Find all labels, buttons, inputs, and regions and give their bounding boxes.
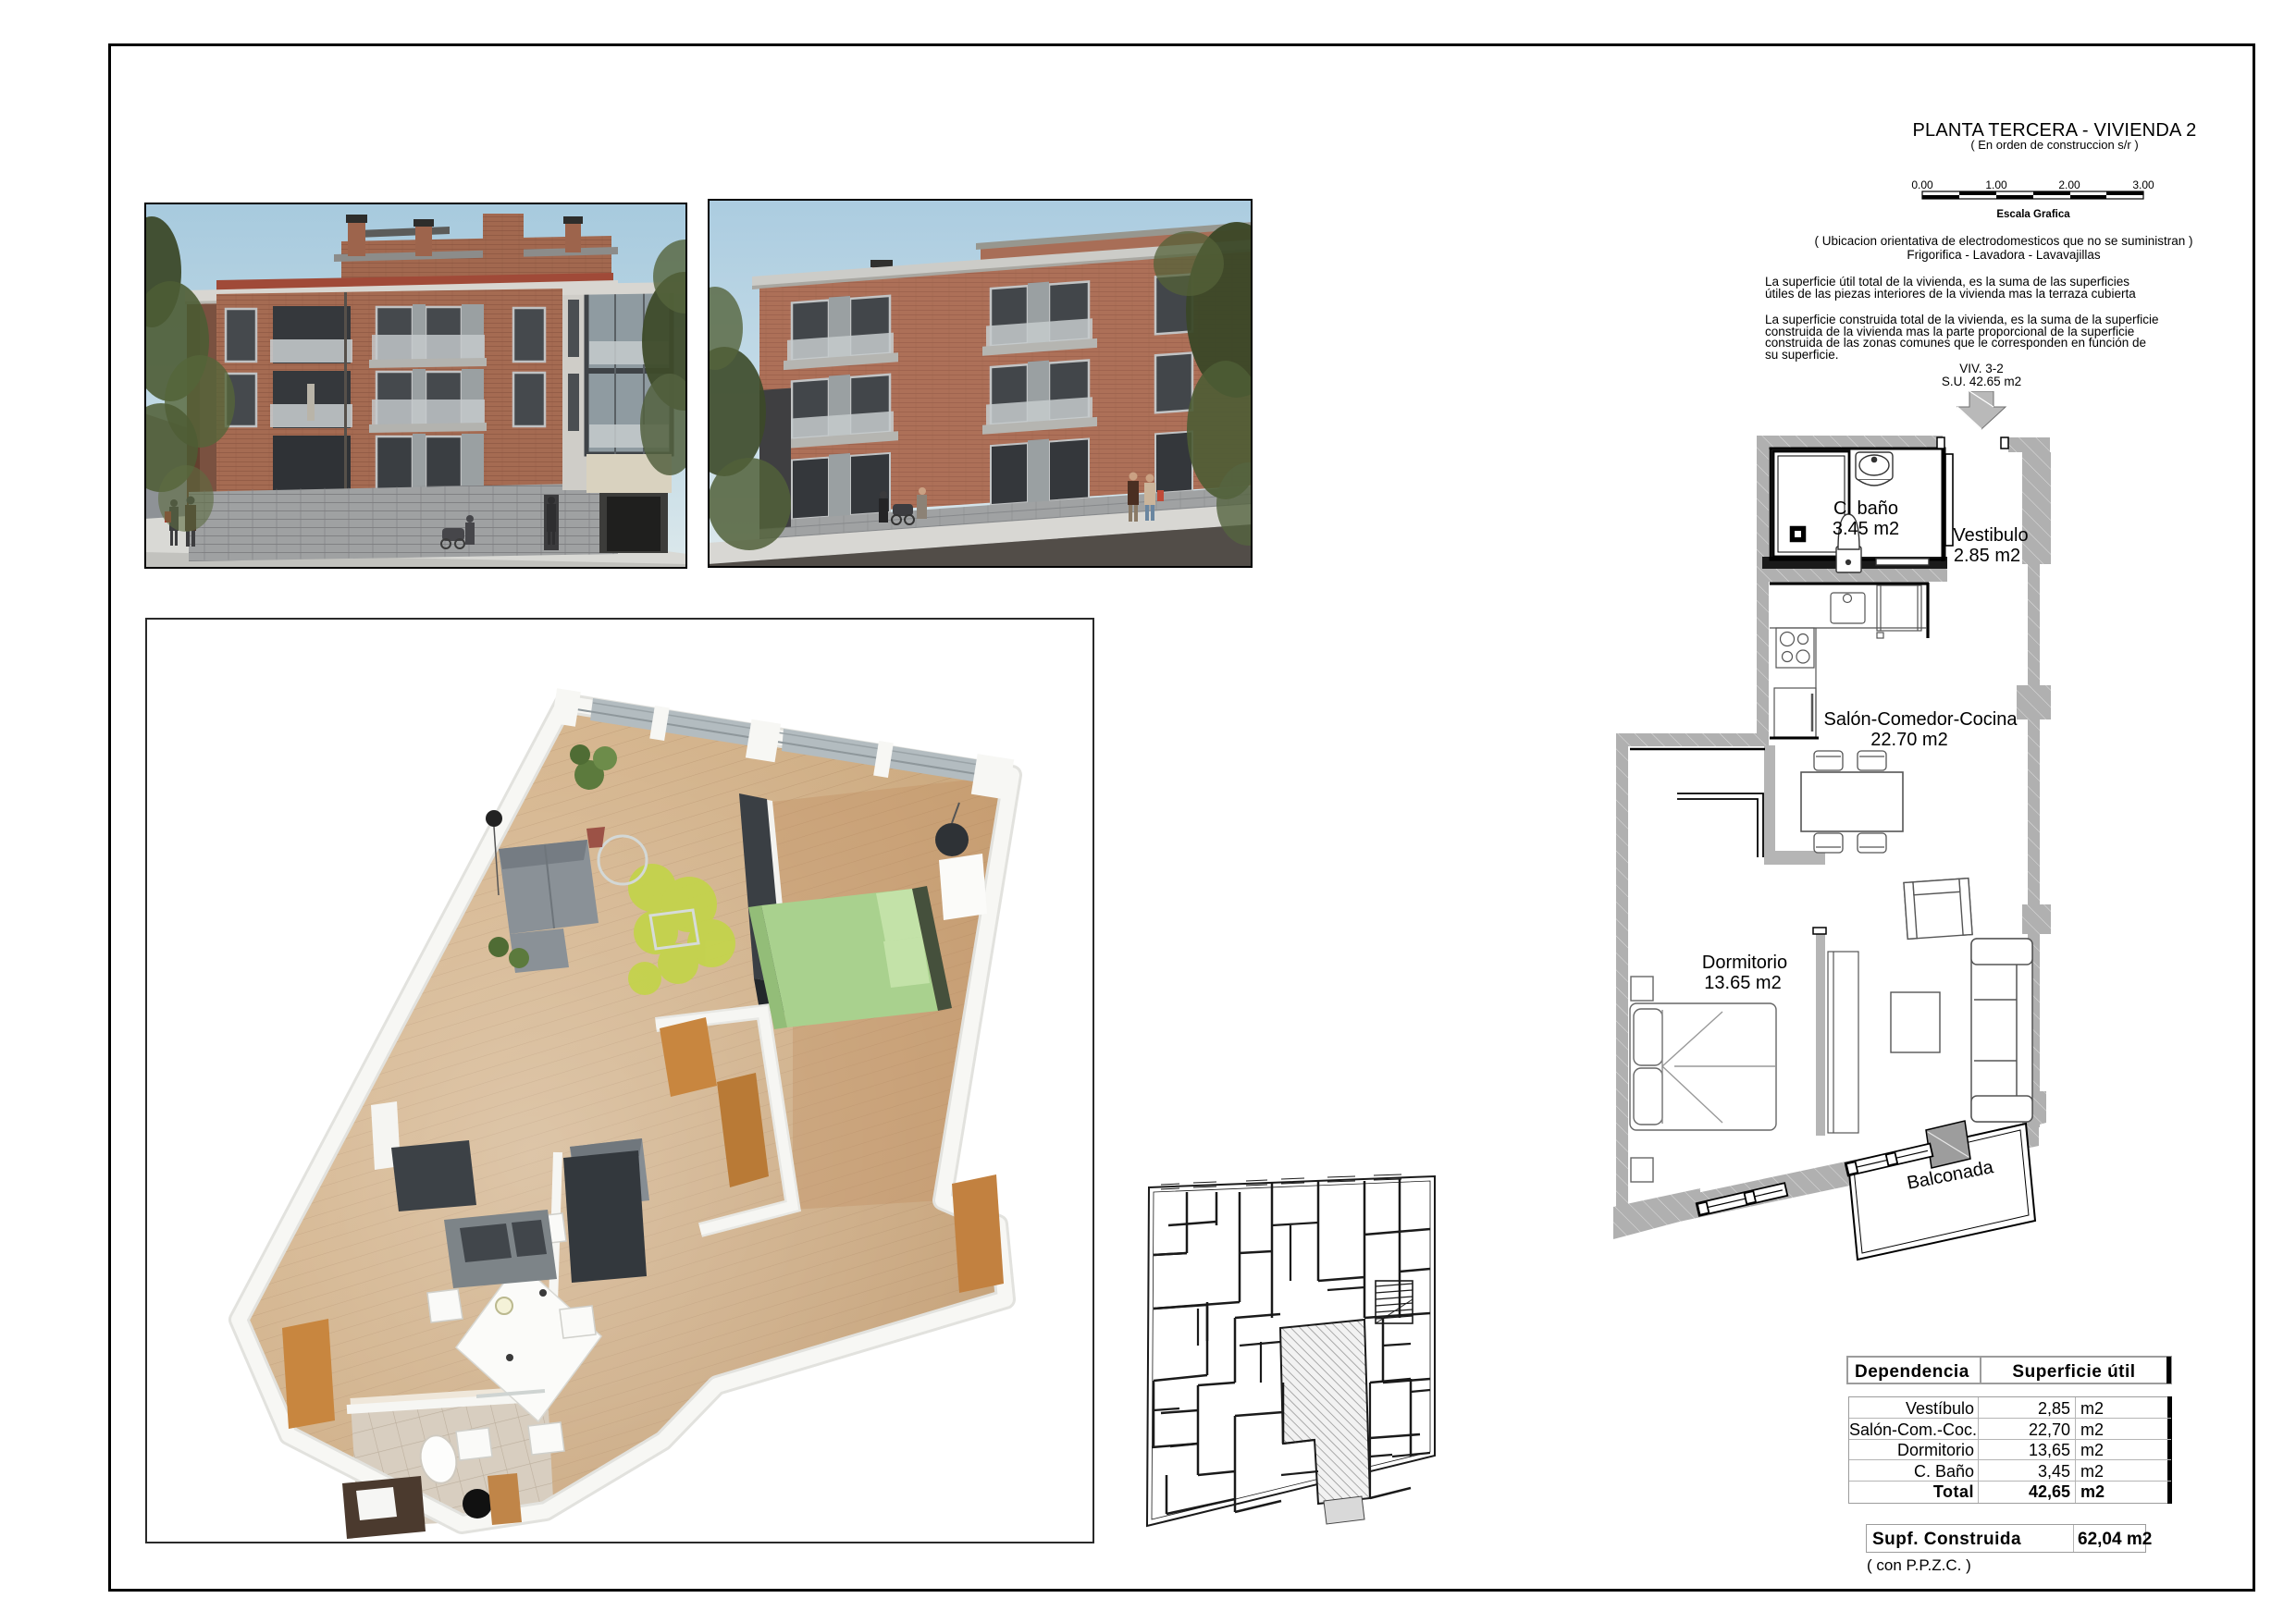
svg-text:1.00: 1.00 [1985, 178, 2007, 191]
svg-text:2.85 m2: 2.85 m2 [1954, 546, 2020, 566]
svg-text:13.65 m2: 13.65 m2 [1704, 973, 1781, 993]
svg-text:22.70 m2: 22.70 m2 [1870, 730, 1947, 750]
svg-text:Salón-Comedor-Cocina: Salón-Comedor-Cocina [1824, 709, 2018, 730]
svg-text:Dormitorio: Dormitorio [1702, 953, 1787, 973]
svg-text:C. baño: C. baño [1833, 498, 1898, 519]
svg-text:Escala Grafica: Escala Grafica [1996, 209, 2070, 220]
svg-text:2.00: 2.00 [2058, 178, 2080, 191]
svg-text:3.45 m2: 3.45 m2 [1833, 519, 1899, 539]
svg-text:Vestibulo: Vestibulo [1953, 525, 2028, 546]
svg-text:0.00: 0.00 [1911, 178, 1933, 191]
svg-text:3.00: 3.00 [2132, 178, 2154, 191]
